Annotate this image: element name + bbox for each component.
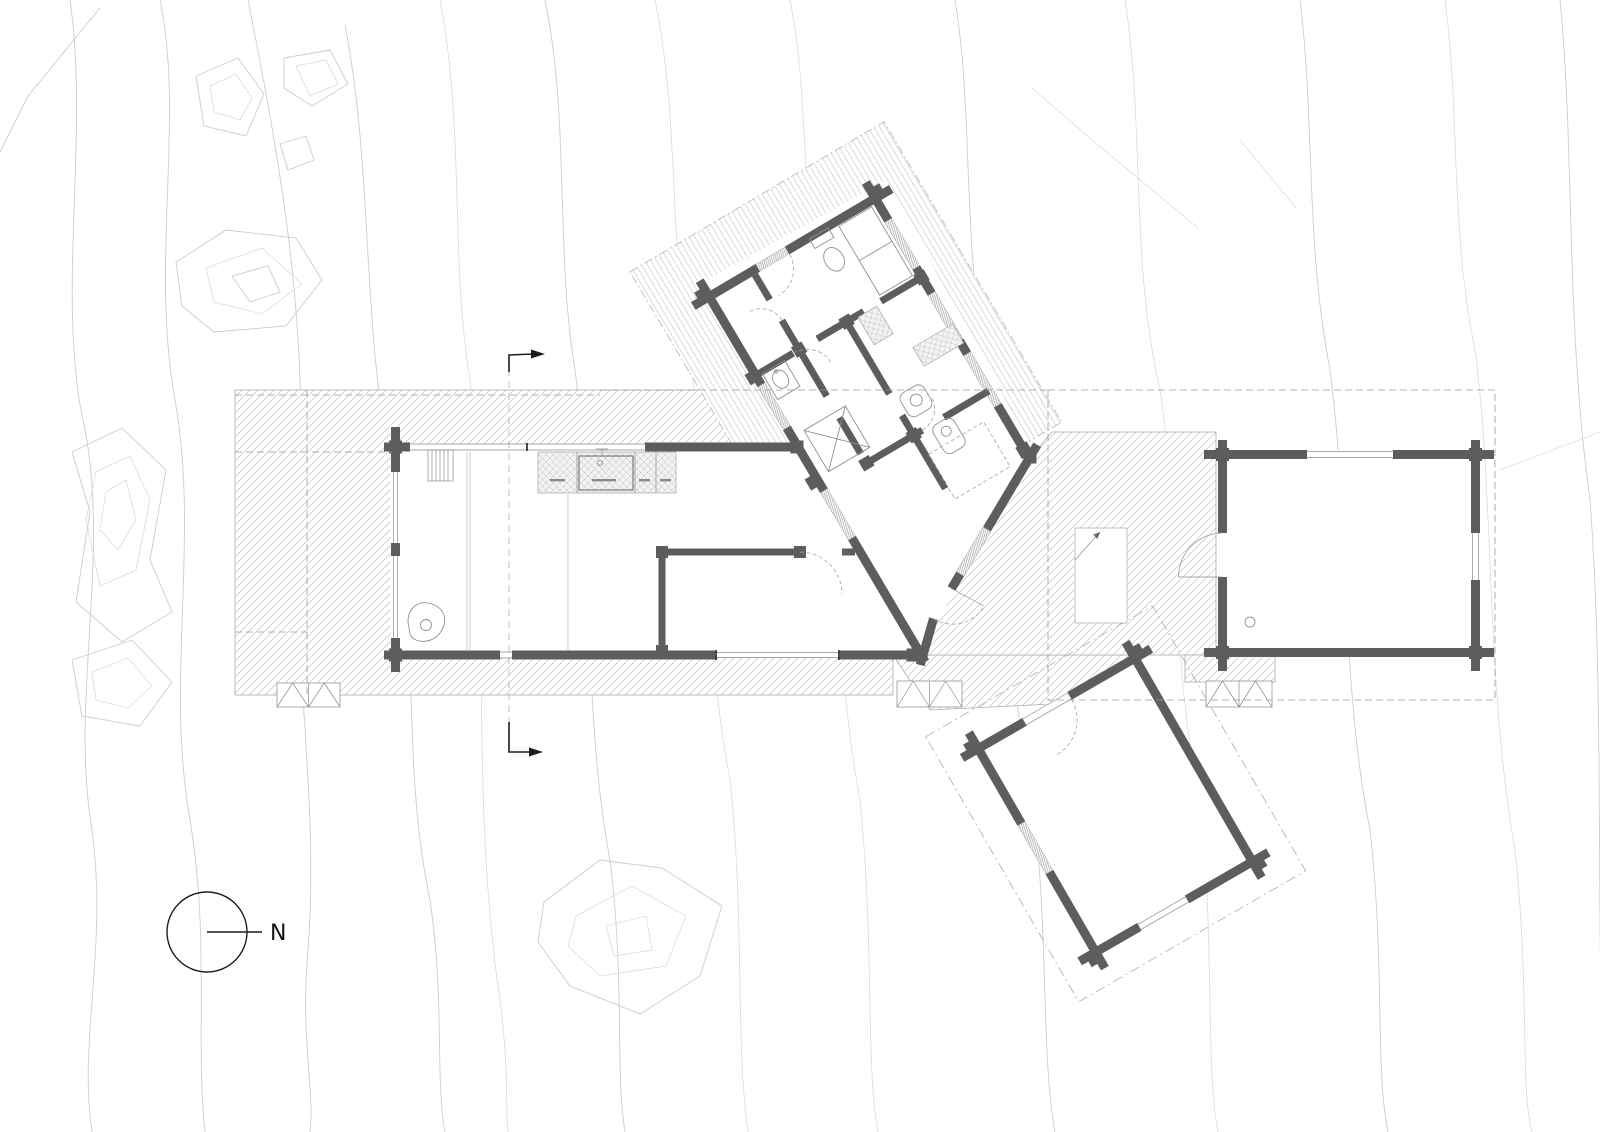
entry-landing: [1075, 528, 1127, 623]
deck-steps-left: [277, 683, 340, 707]
walkway-deck-extension: [1185, 655, 1275, 682]
deck-steps-middle: [897, 681, 962, 707]
contour-cluster-upper-left: [176, 230, 322, 332]
site-plan-canvas: N: [0, 0, 1600, 1132]
contour-cluster-bottom-middle: [538, 860, 722, 1014]
north-label: N: [270, 921, 286, 946]
contour-cluster-top-left: [196, 50, 348, 170]
section-marker-bottom: [509, 722, 543, 757]
north-arrow: N: [167, 892, 286, 972]
contour-cluster-left: [72, 428, 172, 642]
guest-cabin: [1179, 440, 1495, 671]
deck-steps-right: [1206, 681, 1272, 707]
section-marker-top: [509, 350, 545, 373]
guest-cabin-floor: [1218, 450, 1480, 657]
site-plan-drawing: N: [0, 0, 1600, 1132]
kitchen-counter: [538, 449, 676, 493]
